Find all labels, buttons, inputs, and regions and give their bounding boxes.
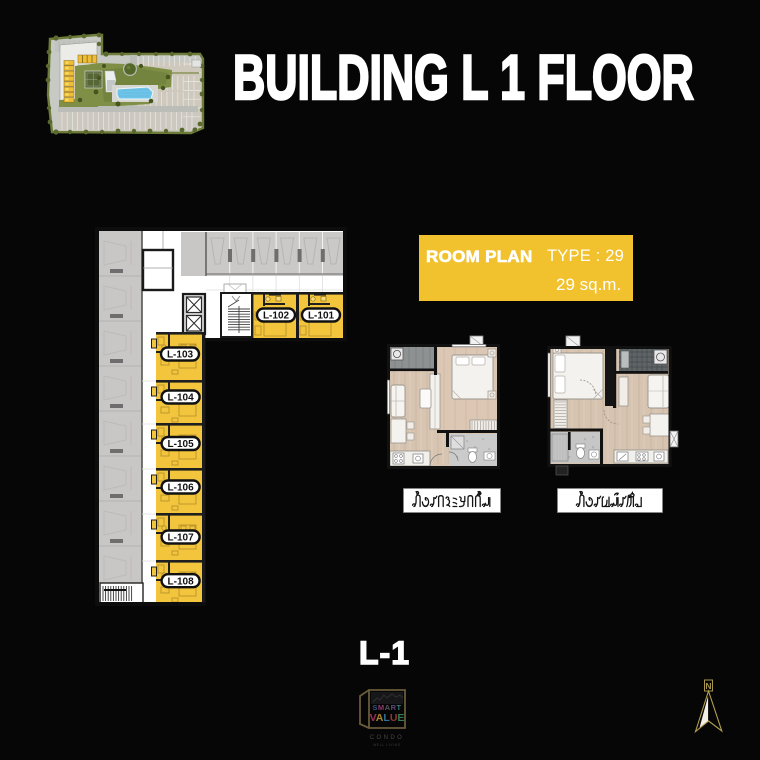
svg-text:SMART: SMART [372, 703, 401, 712]
svg-text:L-106: L-106 [168, 483, 195, 494]
svg-text:L-107: L-107 [168, 533, 195, 544]
svg-text:L-101: L-101 [308, 311, 335, 322]
svg-text:L-104: L-104 [168, 393, 195, 404]
svg-text:WELL LIVING: WELL LIVING [373, 743, 401, 747]
svg-text:CONDO: CONDO [370, 735, 404, 741]
svg-text:L-108: L-108 [168, 576, 195, 587]
svg-text:L-102: L-102 [263, 311, 290, 322]
svg-text:VALUE: VALUE [370, 712, 405, 724]
svg-text:L-105: L-105 [168, 439, 195, 450]
svg-text:L-103: L-103 [167, 350, 194, 361]
